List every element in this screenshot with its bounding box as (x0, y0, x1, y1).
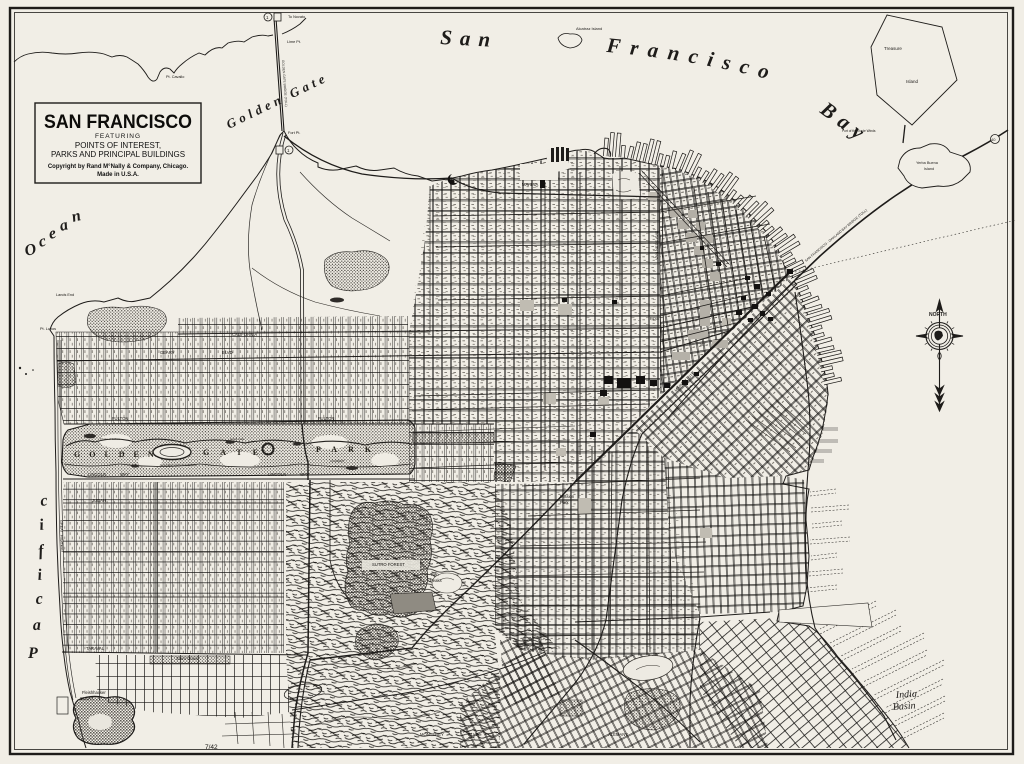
svg-text:Fleishhacker: Fleishhacker (82, 690, 106, 695)
svg-text:Twin: Twin (430, 572, 439, 577)
svg-text:To Novato: To Novato (288, 15, 305, 19)
svg-text:Lime Pt.: Lime Pt. (287, 40, 301, 44)
svg-text:Island: Island (924, 167, 934, 171)
svg-text:Island: Island (906, 79, 919, 84)
svg-text:Lands End: Lands End (56, 293, 74, 297)
svg-text:VAN NESS AVE: VAN NESS AVE (654, 231, 659, 260)
svg-text:Park: Park (560, 500, 570, 505)
svg-text:Mission: Mission (560, 494, 575, 499)
svg-text:FULTON: FULTON (318, 416, 334, 421)
svg-text:NORTH: NORTH (929, 312, 947, 318)
svg-text:WAY: WAY (120, 472, 129, 477)
svg-text:PARKS AND PRINCIPAL BUILDINGS: PARKS AND PRINCIPAL BUILDINGS (51, 150, 185, 159)
svg-text:India: India (894, 689, 917, 702)
svg-text:Fort Pt.: Fort Pt. (288, 131, 300, 135)
svg-text:BLVD: BLVD (468, 732, 479, 737)
svg-text:GEARY: GEARY (160, 350, 175, 355)
svg-text:Stern Grove: Stern Grove (176, 656, 199, 661)
svg-text:Port of the Trade Winds: Port of the Trade Winds (842, 129, 876, 133)
svg-text:MONTEREY: MONTEREY (420, 732, 444, 737)
svg-text:LINCOLN: LINCOLN (268, 472, 286, 477)
svg-text:Copyright by Rand M°Nally & Co: Copyright by Rand M°Nally & Company, Chi… (48, 164, 189, 170)
svg-text:BLVD: BLVD (222, 350, 233, 355)
svg-text:SUTRO FOREST: SUTRO FOREST (372, 562, 405, 567)
svg-text:Yerba Buena: Yerba Buena (916, 161, 939, 165)
svg-text:Chain of Lakes: Chain of Lakes (100, 437, 121, 441)
svg-text:ST: ST (700, 342, 706, 347)
svg-text:JUDAH: JUDAH (92, 498, 106, 503)
svg-text:ALEMANY: ALEMANY (608, 732, 628, 737)
svg-text:Basin: Basin (892, 700, 915, 713)
svg-text:PARK: PARK (316, 445, 382, 454)
svg-text:TARAVAL: TARAVAL (86, 646, 105, 651)
svg-text:LINCOLN: LINCOLN (88, 472, 106, 477)
svg-text:a: a (33, 617, 42, 634)
svg-text:Pt. Cavallo: Pt. Cavallo (166, 75, 184, 79)
svg-text:MARINA: MARINA (522, 182, 538, 187)
svg-text:POINTS OF INTEREST,: POINTS OF INTEREST, (75, 141, 161, 150)
svg-text:SAN FRANCISCO: SAN FRANCISCO (44, 112, 192, 133)
svg-text:Treasure: Treasure (884, 46, 902, 51)
svg-text:FULTON: FULTON (112, 416, 128, 421)
svg-text:Peaks: Peaks (430, 578, 442, 583)
svg-text:POST: POST (650, 316, 662, 321)
svg-text:Lloyd Lake: Lloyd Lake (230, 437, 245, 441)
svg-text:GATE: GATE (203, 448, 269, 457)
svg-text:Alcatraz Island: Alcatraz Island (576, 26, 602, 31)
svg-text:CALIFORNIA: CALIFORNIA (232, 332, 257, 337)
svg-text:Made in U.S.A.: Made in U.S.A. (97, 172, 139, 178)
svg-text:San: San (440, 25, 499, 52)
svg-text:P: P (27, 645, 38, 662)
svg-text:Pt. Lobos: Pt. Lobos (40, 327, 56, 331)
svg-text:SLOAT: SLOAT (80, 696, 94, 701)
svg-text:FEATURING: FEATURING (95, 133, 141, 140)
svg-text:c: c (35, 591, 43, 608)
svg-text:7/42: 7/42 (205, 744, 218, 751)
svg-text:GOLDEN: GOLDEN (74, 450, 163, 459)
svg-text:40: 40 (991, 137, 996, 142)
svg-text:ACADEMY: ACADEMY (330, 459, 345, 463)
svg-text:GOLDEN GATE STADIUM: GOLDEN GATE STADIUM (160, 463, 196, 467)
svg-text:WAY: WAY (300, 472, 309, 477)
